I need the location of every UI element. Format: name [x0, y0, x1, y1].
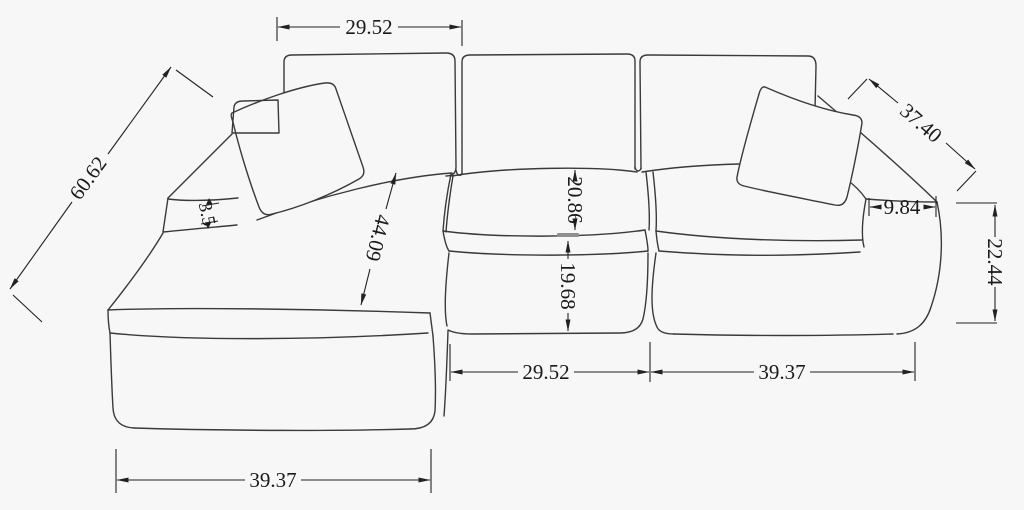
- dim-top-width-label: 29.52: [345, 15, 392, 39]
- right-seat-crevice-a: [646, 172, 649, 230]
- dim-chaise-width: 39.37: [116, 449, 431, 493]
- dim-chaise-length-label: 44.09: [361, 212, 396, 264]
- middle-base-left: [445, 253, 449, 326]
- dim-mid-width: 29.52: [450, 342, 650, 384]
- dim-right-depth: 37.40: [848, 79, 976, 191]
- left-arm-edge: [163, 198, 168, 232]
- dim-arrow-line: [386, 173, 396, 209]
- chaise-seat-left-edge: [108, 233, 163, 310]
- chaise-band-right-edge: [430, 313, 433, 336]
- dim-ext-line: [848, 79, 976, 191]
- dim-back-height-label: 20.86: [563, 176, 587, 223]
- middle-base-bottom: [448, 253, 648, 334]
- dim-seat-height-label: 19.68: [556, 262, 580, 309]
- middle-seat-front: [443, 230, 645, 236]
- right-pillow: [737, 87, 862, 205]
- dim-right-depth-label: 37.40: [895, 98, 946, 147]
- dim-arrow-line: [361, 269, 370, 305]
- right-arm-inner: [862, 199, 866, 247]
- left-arm-band-top: [168, 198, 238, 201]
- chaise-seat-front-edge: [108, 309, 430, 313]
- chaise-seat-corner: [108, 310, 110, 333]
- dim-chaise-width-label: 39.37: [249, 468, 296, 492]
- dim-back-height: 20.86: [563, 170, 587, 230]
- chaise-band-bottom: [110, 333, 428, 339]
- sofa-dimension-diagram: 29.52 60.62 3.5 44.09 20.86 19.: [0, 0, 1024, 510]
- dim-ext-line: [13, 70, 213, 322]
- middle-band-bottom: [449, 251, 648, 255]
- middle-band-left: [443, 231, 449, 251]
- dim-arm-pad-label: 3.5: [194, 200, 219, 228]
- dim-arrow-line: [108, 67, 171, 154]
- dim-arm-width: 9.84: [869, 195, 936, 219]
- right-seat-crevice-b: [653, 172, 656, 231]
- dim-right-width: 39.37: [651, 342, 915, 384]
- chaise-base-bottom: [134, 428, 410, 430]
- seatback-junction-middle: [452, 168, 637, 176]
- left-arm-slant: [168, 134, 232, 198]
- backrest-crevice-right: [635, 167, 641, 171]
- right-base-left: [652, 253, 674, 334]
- right-base-bottom: [674, 334, 893, 336]
- right-arm-outer: [897, 202, 941, 334]
- dim-arm-pad: 3.5: [194, 198, 219, 229]
- dim-chaise-length: 44.09: [361, 173, 396, 305]
- dim-right-width-label: 39.37: [758, 360, 805, 384]
- dim-arrow-line: [10, 202, 72, 289]
- dim-side-height: 22.44: [956, 203, 1007, 323]
- dim-side-height-label: 22.44: [983, 238, 1007, 286]
- dim-arm-width-label: 9.84: [884, 195, 921, 219]
- right-band-left: [656, 231, 659, 251]
- middle-band-right: [645, 230, 648, 251]
- chaise-base-left: [110, 333, 134, 428]
- chaise-base-back-edge: [444, 331, 448, 416]
- diagram-svg: 29.52 60.62 3.5 44.09 20.86 19.: [0, 0, 1024, 510]
- right-band-bottom: [659, 251, 860, 255]
- right-seat-front: [656, 231, 862, 241]
- measure-highlight-tick: [557, 233, 579, 237]
- dim-arrow-line: [869, 79, 898, 103]
- dim-left-depth: 60.62: [10, 67, 213, 322]
- middle-backrest: [462, 54, 635, 174]
- left-pillow: [231, 83, 364, 215]
- dim-left-depth-label: 60.62: [64, 152, 111, 204]
- dim-top-width: 29.52: [277, 15, 462, 46]
- dim-mid-width-label: 29.52: [522, 360, 569, 384]
- chaise-base-right: [410, 336, 435, 429]
- dim-arrow-line: [946, 143, 975, 169]
